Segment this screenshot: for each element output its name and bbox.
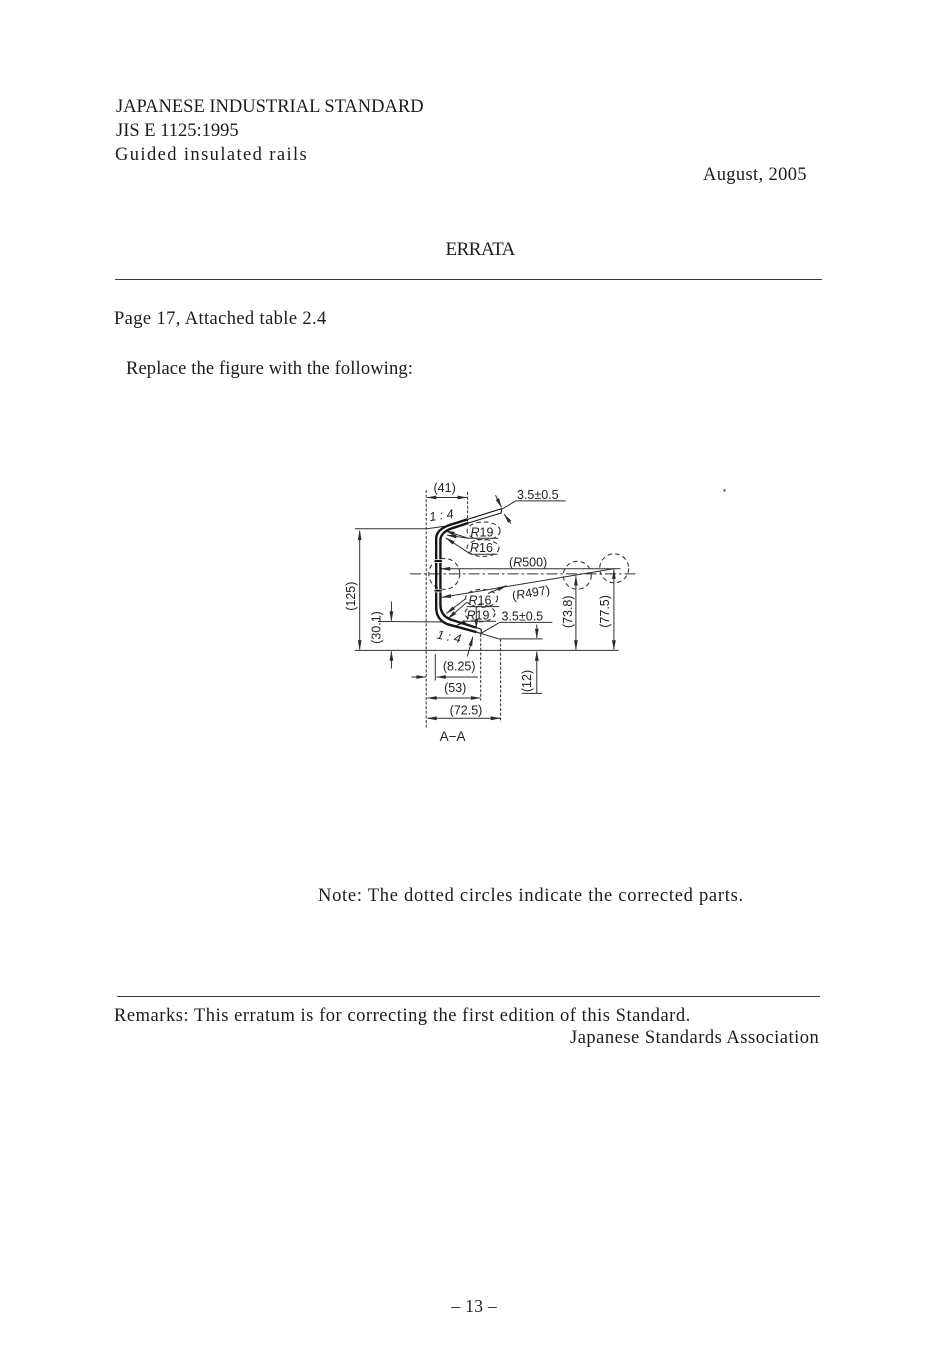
svg-text:R16: R16: [470, 541, 493, 555]
svg-text:(125): (125): [344, 582, 358, 611]
svg-text:1 : 4: 1 : 4: [436, 628, 463, 646]
svg-text:(8.25): (8.25): [443, 660, 476, 674]
svg-text:A−A: A−A: [440, 729, 466, 744]
svg-text:(41): (41): [434, 481, 456, 495]
svg-text:(53): (53): [444, 681, 466, 695]
svg-text:(30.1): (30.1): [369, 611, 383, 644]
svg-text:(R497): (R497): [511, 583, 551, 603]
svg-text:3.5±0.5: 3.5±0.5: [517, 488, 559, 502]
svg-text:R19: R19: [467, 608, 490, 622]
svg-text:(R500): (R500): [509, 555, 547, 569]
svg-text:(72.5): (72.5): [450, 704, 483, 718]
svg-text:(12): (12): [520, 670, 534, 692]
svg-text:3.5±0.5: 3.5±0.5: [502, 609, 544, 623]
svg-text:R19: R19: [471, 525, 494, 539]
svg-text:R16: R16: [469, 594, 492, 608]
svg-text:1 : 4: 1 : 4: [428, 507, 454, 524]
svg-text:(73.8): (73.8): [561, 595, 575, 628]
svg-text:(77.5): (77.5): [598, 595, 612, 628]
